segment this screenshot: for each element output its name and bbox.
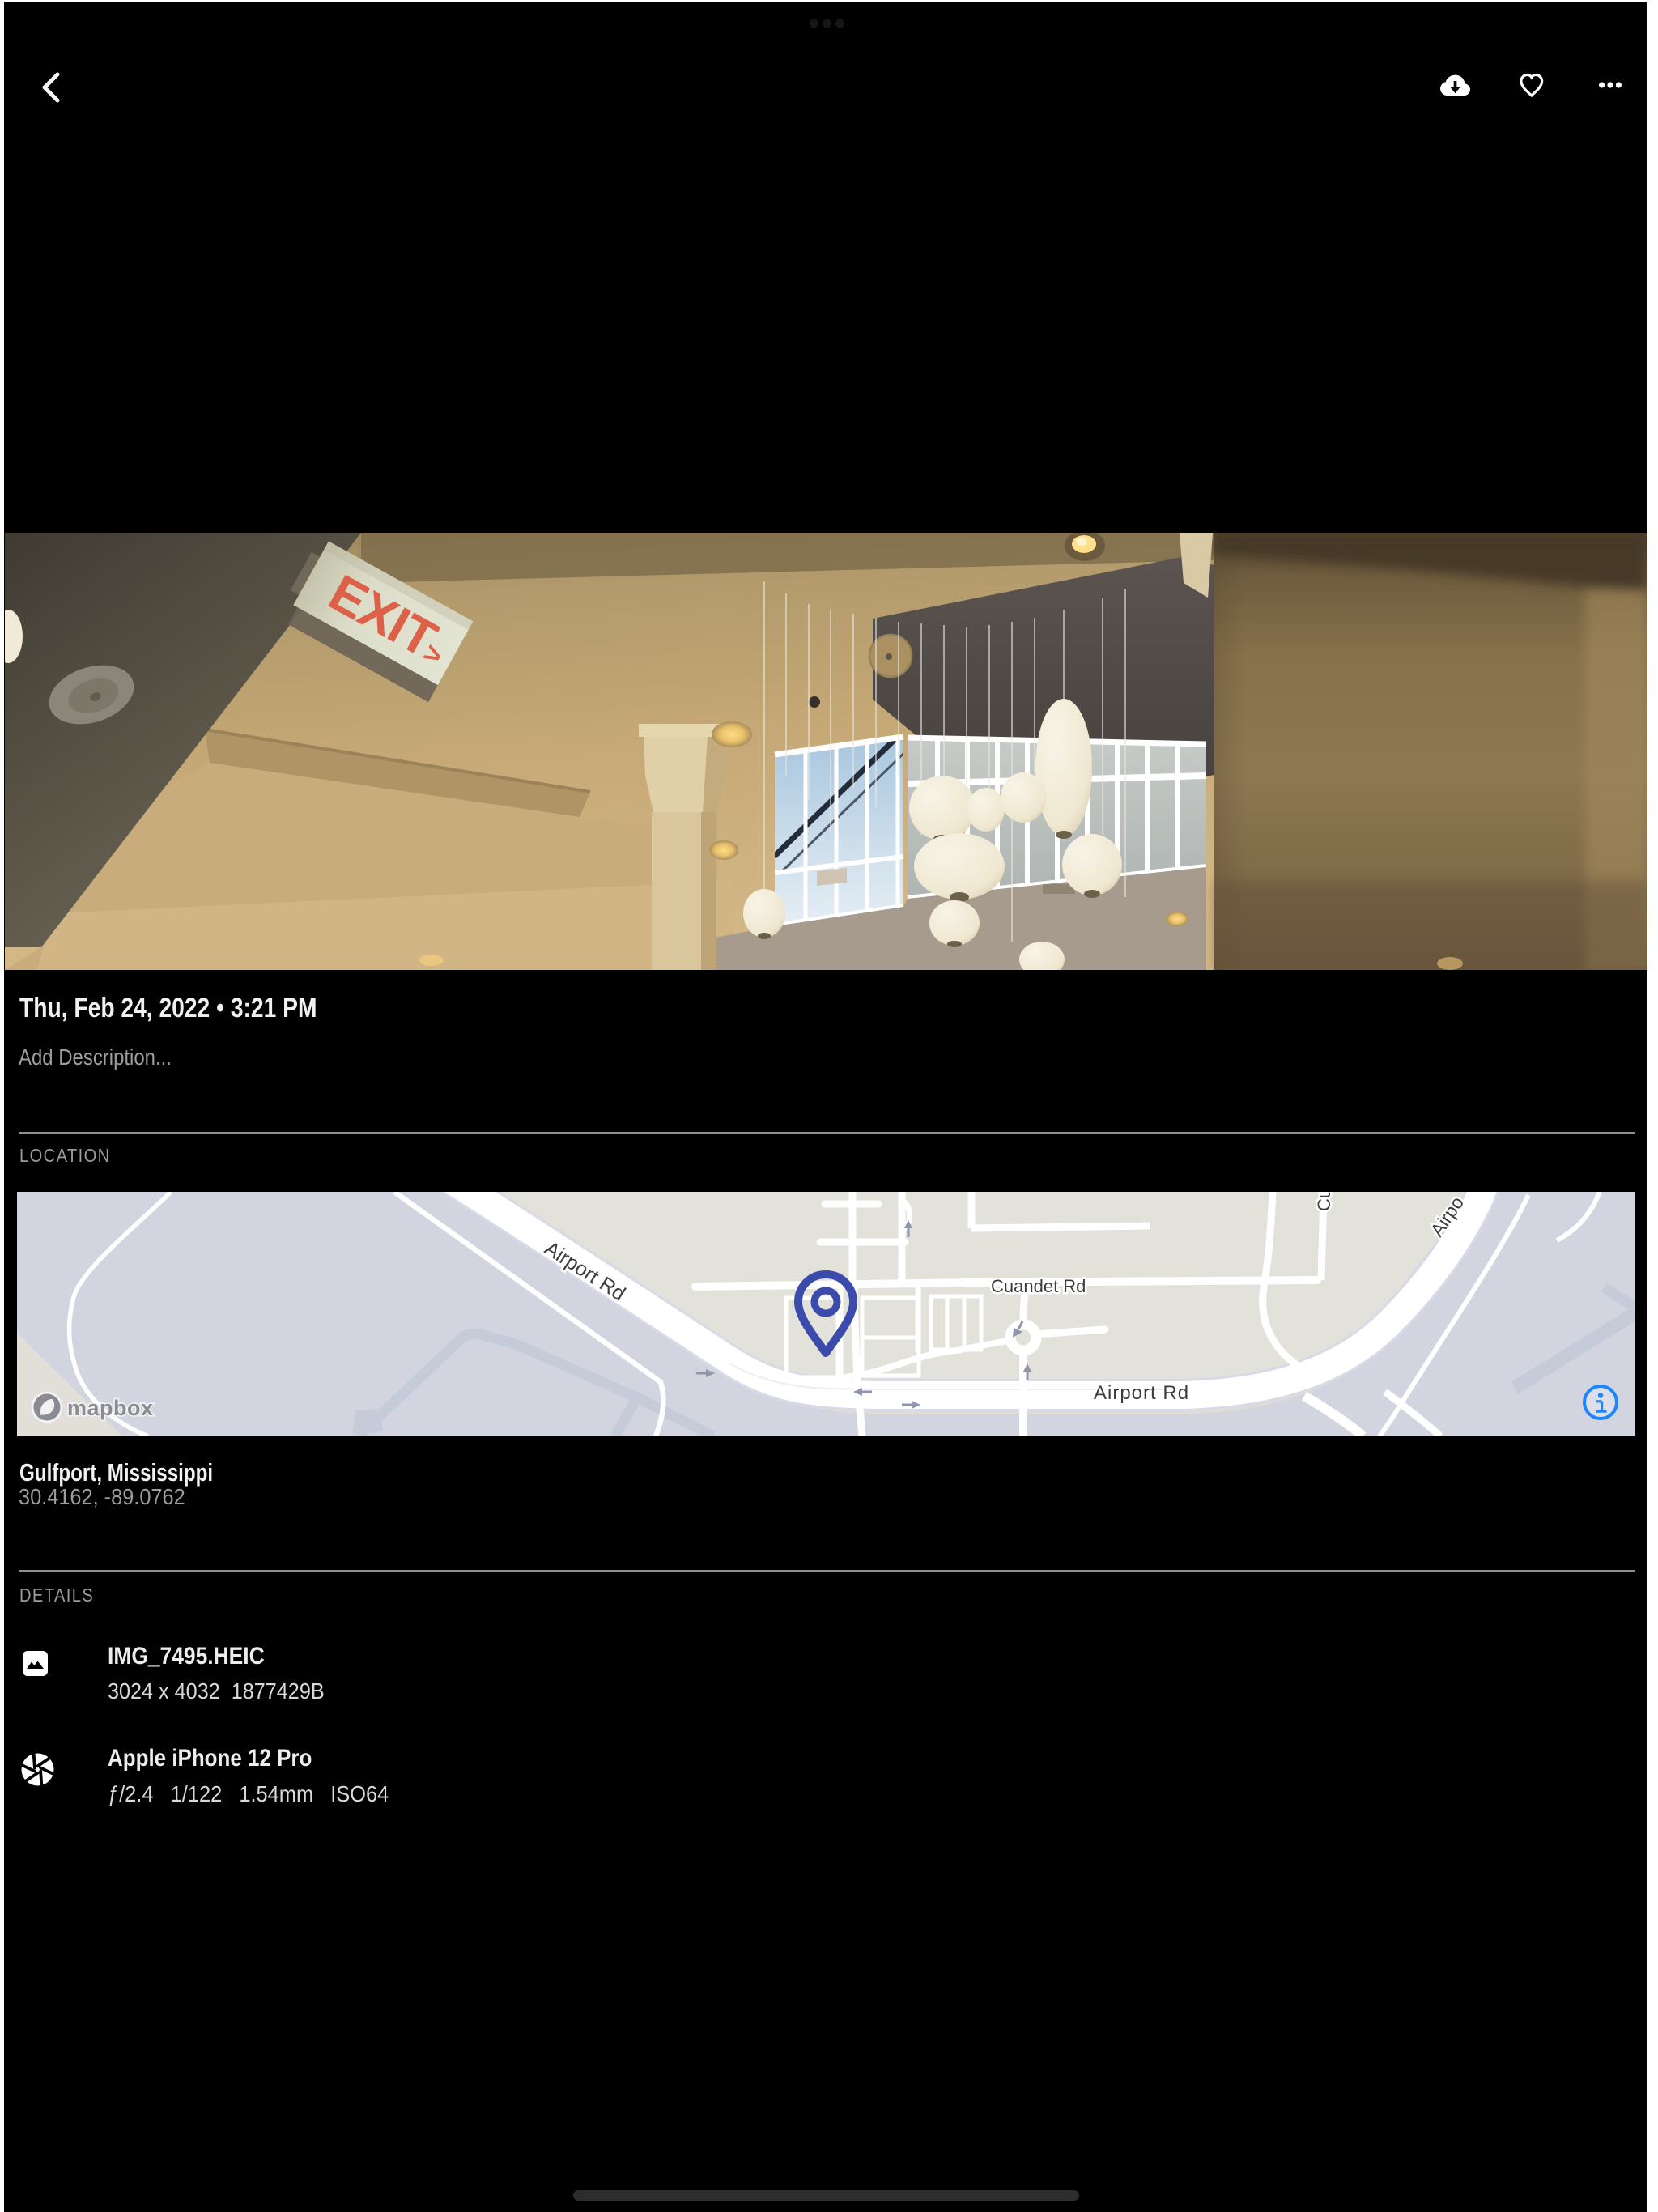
svg-text:Cuandet Rd: Cuandet Rd [991, 1276, 1086, 1296]
svg-text:Airport Rd: Airport Rd [1094, 1382, 1189, 1404]
svg-text:mapbox: mapbox [67, 1396, 154, 1420]
svg-text:Cu: Cu [1314, 1192, 1334, 1211]
